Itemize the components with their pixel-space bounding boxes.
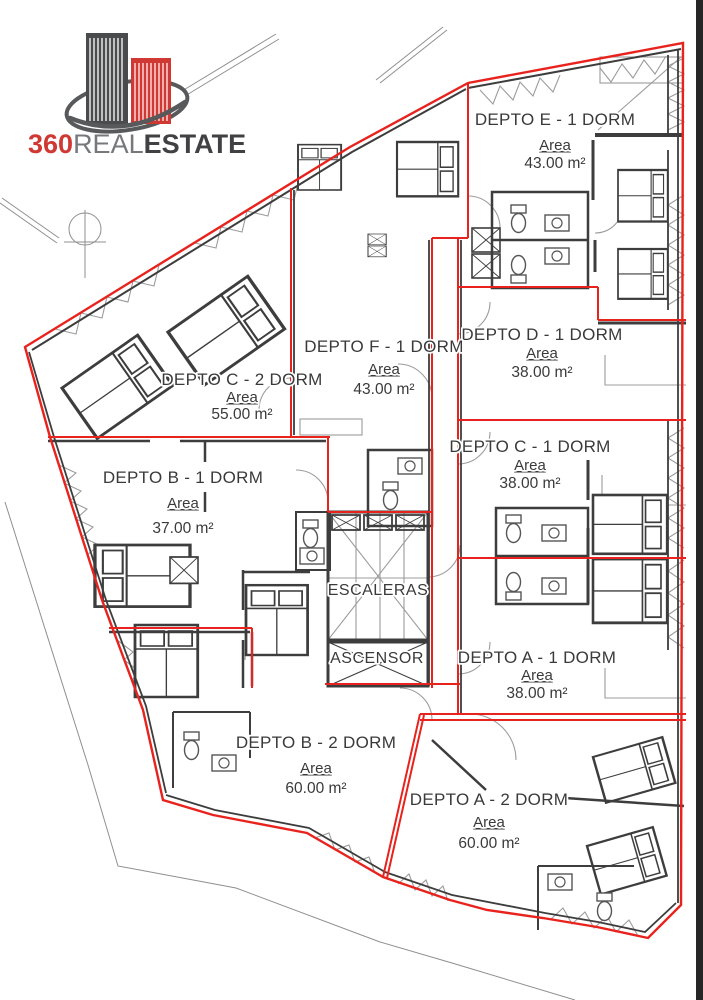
unit-area-value: 43.00 m² [524,155,585,172]
outer-boundary [25,43,683,938]
sink-icon [542,525,566,541]
unit-area-value: 38.00 m² [511,364,572,381]
bed-icon [135,625,198,697]
toilet-icon [511,205,526,233]
unit-title: DEPTO A - 1 DORM [458,648,616,667]
survey-marker-icon [64,210,106,278]
site-line-top-right [376,27,447,83]
bed-icon [62,335,173,438]
closet-icon [472,254,500,278]
logo: 360REALESTATE [28,33,246,159]
sink-icon [398,458,422,474]
unit-label-depto-b1: DEPTO B - 1 DORM Area 37.00 m² [103,468,263,537]
floor-plan-canvas: DEPTO E - 1 DORM Area 43.00 m² DEPTO D -… [0,0,703,1000]
unit-area-label: Area [167,495,199,512]
logo-wordmark: 360REALESTATE [28,129,246,159]
closet-icon [170,557,198,583]
window-zigzag [59,465,99,555]
bed-icon [593,495,667,554]
unit-label-depto-c1: DEPTO C - 1 DORM Area 38.00 m² [449,437,610,492]
toilet-icon [184,732,199,760]
unit-area-value: 43.00 m² [353,381,414,398]
bed-icon [246,585,308,655]
bed-icon [298,145,341,190]
unit-title: DEPTO B - 1 DORM [103,468,263,487]
unit-area-value: 60.00 m² [285,780,346,797]
window-zigzag [600,56,666,82]
bed-icon [618,249,668,299]
unit-label-depto-e: DEPTO E - 1 DORM Area 43.00 m² [475,110,635,172]
sink-icon [300,548,324,564]
elevator-label: ASCENSOR [330,650,424,667]
counter-depto-a1 [605,668,686,698]
unit-area-value: 60.00 m² [458,835,519,852]
closet-icon [368,246,386,257]
closet-icon [368,234,386,245]
logo-text-real: REAL [73,129,144,159]
toilet-icon [506,573,521,601]
bed-icon [168,276,285,385]
site-line-left [0,198,59,243]
unit-area-value: 38.00 m² [499,475,560,492]
stairs-label: ESCALERAS [328,582,429,599]
unit-label-depto-a1: DEPTO A - 1 DORM Area 38.00 m² [458,648,616,702]
unit-title: DEPTO A - 2 DORM [410,790,568,809]
unit-area-label: Area [514,457,546,474]
bed-icon [618,170,668,222]
door-arc [468,196,500,228]
bed-icon [593,737,675,803]
right-edge-strip [696,0,703,1000]
toilet-icon [506,515,521,543]
door-arc [296,470,328,502]
unit-title: DEPTO D - 1 DORM [461,325,622,344]
light-details [55,56,686,936]
unit-title: DEPTO B - 2 DORM [236,733,396,752]
unit-area-label: Area [521,667,553,684]
counter-depto-d [605,355,686,385]
sink-icon [545,248,569,264]
floor-plan-page: DEPTO E - 1 DORM Area 43.00 m² DEPTO D -… [0,0,703,1000]
sink-icon [542,578,566,594]
site-boundary-lines [0,27,575,1000]
logo-building-gray [86,33,128,125]
unit-title: DEPTO E - 1 DORM [475,110,635,129]
door-arcs [245,196,623,760]
door-arc [400,688,432,720]
window-zigzag [668,58,684,130]
unit-label-depto-a2: DEPTO A - 2 DORM Area 60.00 m² [410,790,568,852]
unit-label-depto-f: DEPTO F - 1 DORM Area 43.00 m² [304,337,463,398]
interior-walls [29,49,686,932]
unit-area-label: Area [526,345,558,362]
unit-title: DEPTO C - 1 DORM [449,437,610,456]
window-zigzags [55,56,684,936]
unit-area-label: Area [368,361,400,378]
logo-text-360: 360 [28,129,73,159]
bed-icon [587,827,667,894]
toilet-icon [597,893,612,921]
site-line-top [182,34,279,96]
counter-depto-f [300,419,362,435]
bed-icon [397,142,458,196]
sink-icon [212,755,236,771]
sink-icon [545,215,569,231]
unit-area-value: 55.00 m² [211,406,272,423]
sink-icon [548,874,572,890]
bed-icon [593,559,667,623]
unit-title: DEPTO C - 2 DORM [161,370,322,389]
unit-label-depto-c2: DEPTO C - 2 DORM Area 55.00 m² [161,370,322,423]
unit-area-value: 37.00 m² [152,520,213,537]
wall [468,49,681,88]
unit-area-label: Area [300,760,332,777]
unit-area-label: Area [473,814,505,831]
stair-closets [332,515,424,530]
unit-area-value: 38.00 m² [506,685,567,702]
unit-label-depto-d: DEPTO D - 1 DORM Area 38.00 m² [461,325,622,381]
unit-area-label: Area [539,137,571,154]
stair-treads [328,512,428,640]
toilet-icon [383,482,398,510]
logo-text-estate: ESTATE [144,129,247,159]
unit-title: DEPTO F - 1 DORM [304,337,463,356]
toilet-icon [511,256,526,284]
toilet-icon [303,520,318,548]
unit-label-depto-b2: DEPTO B - 2 DORM Area 60.00 m² [236,733,396,797]
unit-area-label: Area [226,389,258,406]
